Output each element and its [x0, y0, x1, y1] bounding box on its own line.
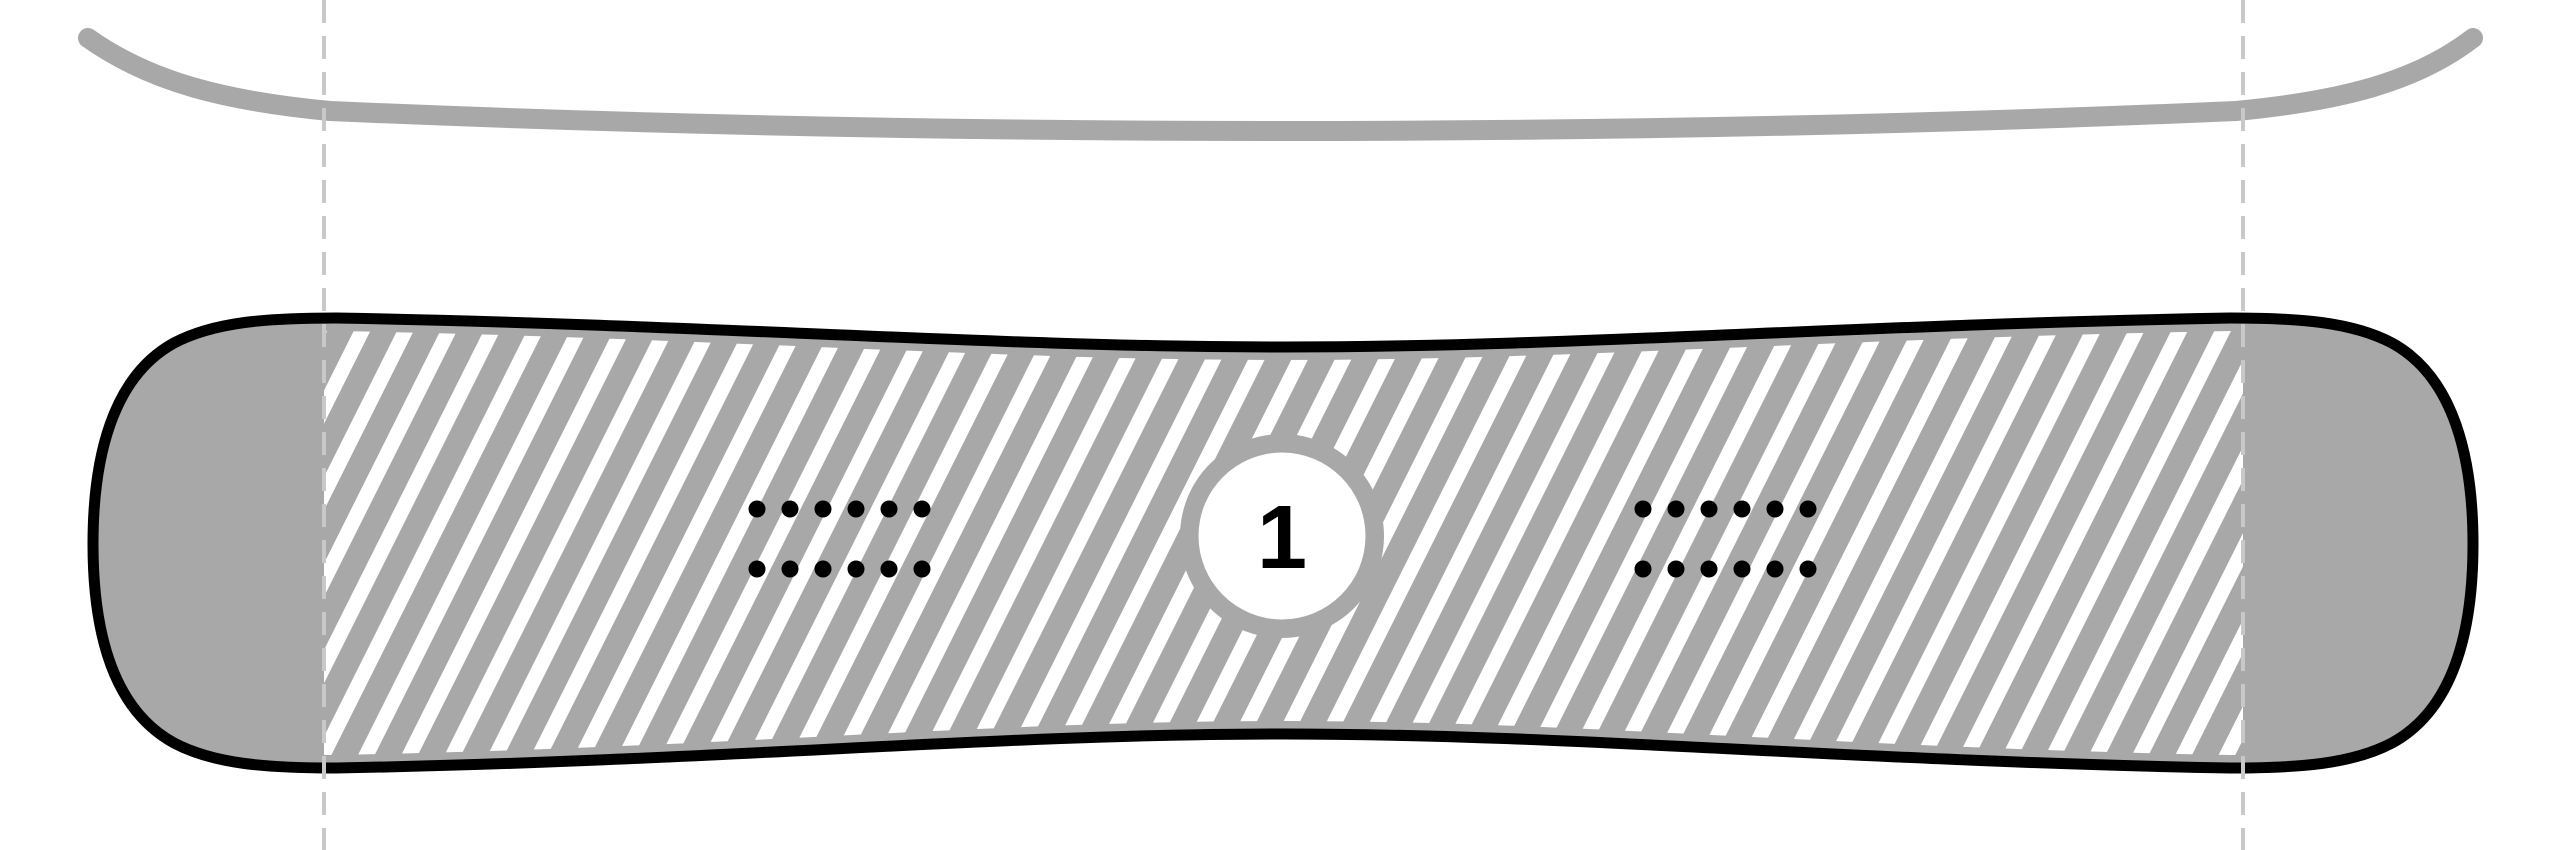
insert-dot: [782, 561, 799, 578]
insert-dot: [1701, 501, 1718, 518]
insert-dot: [914, 561, 931, 578]
insert-dot: [881, 561, 898, 578]
snowboard-diagram: 1: [0, 0, 2560, 850]
insert-dot: [1767, 501, 1784, 518]
insert-dot: [749, 501, 766, 518]
insert-dot: [848, 561, 865, 578]
snowboard-top-view: 1: [93, 290, 2473, 800]
insert-dot: [1734, 561, 1751, 578]
insert-dot: [914, 501, 931, 518]
insert-dot: [815, 501, 832, 518]
insert-dot: [1668, 561, 1685, 578]
insert-dot: [1767, 561, 1784, 578]
insert-dot: [782, 501, 799, 518]
insert-dot: [1800, 561, 1817, 578]
insert-dot: [881, 501, 898, 518]
insert-dot: [1734, 501, 1751, 518]
marker-number: 1: [1257, 488, 1307, 588]
insert-dot: [1668, 501, 1685, 518]
position-marker: 1: [1180, 434, 1384, 638]
insert-dot: [749, 561, 766, 578]
insert-dot: [1635, 501, 1652, 518]
insert-dot: [1800, 501, 1817, 518]
insert-dot: [848, 501, 865, 518]
insert-dot: [815, 561, 832, 578]
insert-dot: [1635, 561, 1652, 578]
insert-dot: [1701, 561, 1718, 578]
